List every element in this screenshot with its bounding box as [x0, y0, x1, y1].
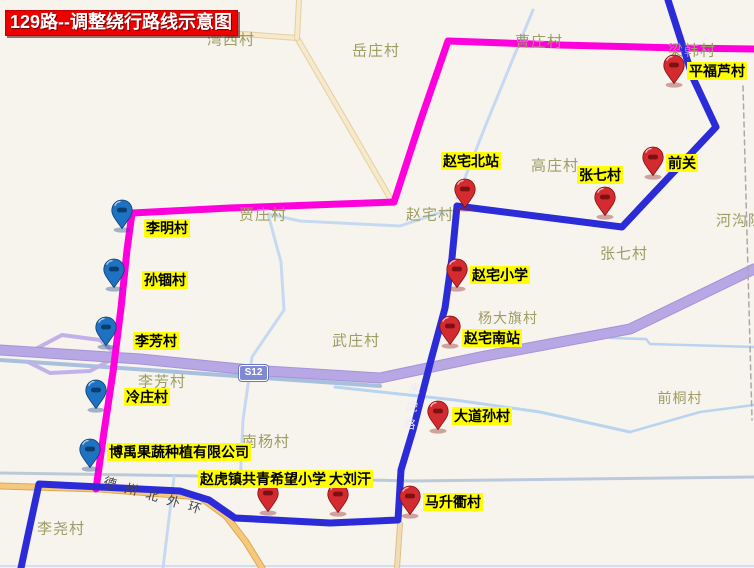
village-label: 岳庄村 — [352, 40, 400, 61]
blue-bus-stop-pin-icon[interactable] — [110, 199, 134, 233]
village-label: 高庄村 — [531, 155, 579, 176]
bus-stop-label: 赵宅南站 — [462, 329, 522, 347]
bus-stop-label: 大刘汗 — [327, 470, 373, 488]
bus-stop-label: 孙锢村 — [142, 271, 188, 289]
blue-bus-stop-pin-icon[interactable] — [78, 438, 102, 472]
bus-stop-label: 博禹果蔬种植有限公司 — [107, 443, 251, 461]
blue-bus-stop-pin-icon[interactable] — [84, 379, 108, 413]
village-label: 赵宅村 — [406, 204, 454, 225]
page-title: 129路--调整绕行路线示意图 — [5, 10, 238, 36]
red-bus-stop-pin-icon[interactable] — [438, 315, 462, 349]
red-bus-stop-pin-icon[interactable] — [453, 178, 477, 212]
red-bus-stop-pin-icon[interactable] — [641, 146, 665, 180]
map-stage[interactable]: 湾西村岳庄村曹庄村梁韩村高庄村河沟陈张七村贾庄村赵宅村武庄村杨大旗村李芳村南杨村… — [0, 0, 754, 568]
red-bus-stop-pin-icon[interactable] — [445, 258, 469, 292]
bus-stop-label: 张七村 — [577, 166, 623, 184]
village-label: 杨大旗村 — [478, 308, 538, 328]
village-label: 河沟陈 — [716, 210, 754, 231]
bus-stop-label: 赵宅北站 — [441, 152, 501, 170]
village-label: 武庄村 — [332, 330, 380, 351]
bus-stop-label: 赵宅小学 — [470, 266, 530, 284]
red-bus-stop-pin-icon[interactable] — [426, 400, 450, 434]
village-label: 张七村 — [600, 243, 648, 264]
bus-stop-label: 平福芦村 — [687, 62, 747, 80]
bus-stop-label: 李明村 — [144, 219, 190, 237]
village-label: 贾庄村 — [239, 204, 287, 225]
bus-stop-label: 大道孙村 — [452, 407, 512, 425]
bus-stop-label: 李芳村 — [133, 332, 179, 350]
village-label: 李尧村 — [37, 518, 85, 539]
red-bus-stop-pin-icon[interactable] — [398, 485, 422, 519]
village-label: 前桐村 — [658, 388, 703, 408]
red-bus-stop-pin-icon[interactable] — [662, 54, 686, 88]
bus-stop-label: 前关 — [666, 154, 698, 172]
bus-stop-label: 赵虎镇共青希望小学 — [198, 470, 328, 488]
red-bus-stop-pin-icon[interactable] — [593, 186, 617, 220]
s12-highway-shield: S12 — [239, 365, 268, 381]
bus-stop-label: 冷庄村 — [124, 388, 170, 406]
red-bus-stop-pin-icon[interactable] — [326, 483, 350, 517]
village-label: 曹庄村 — [515, 31, 563, 52]
bus-stop-label: 马升衢村 — [423, 493, 483, 511]
blue-bus-stop-pin-icon[interactable] — [94, 316, 118, 350]
blue-bus-stop-pin-icon[interactable] — [102, 258, 126, 292]
